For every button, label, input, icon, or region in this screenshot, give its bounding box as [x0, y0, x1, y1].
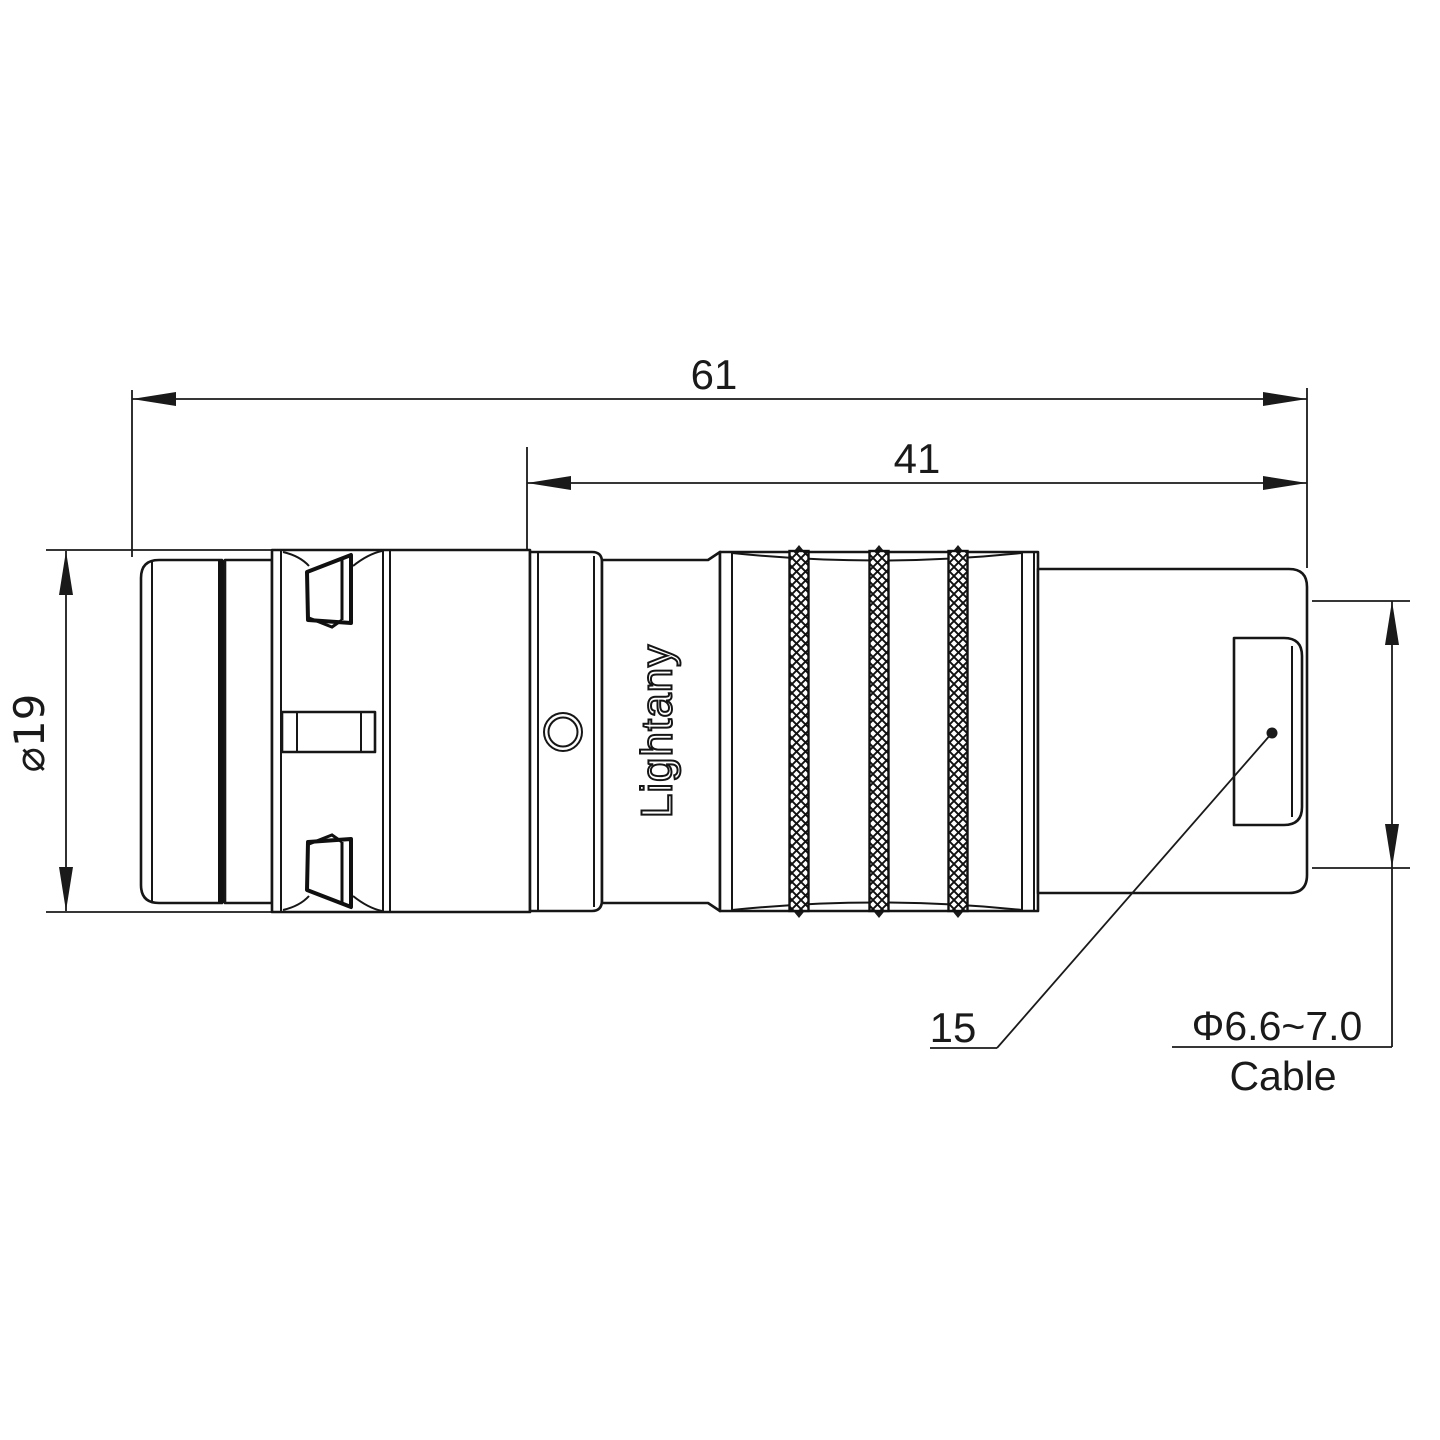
- connector-body: Lightany: [141, 545, 1307, 918]
- front-barrel: [225, 560, 272, 903]
- dim-61-label: 61: [691, 351, 738, 398]
- connector-drawing: Lightany 61 41 ⌀19: [0, 0, 1440, 1440]
- dim-cable-word-label: Cable: [1229, 1053, 1336, 1099]
- knurl-band-3-body: [949, 551, 968, 911]
- knurl-band-2-body: [870, 551, 889, 911]
- front-cap: [141, 560, 222, 903]
- dim-41-arrow-left: [527, 476, 571, 490]
- dim-cable-arrow-bottom: [1385, 824, 1399, 868]
- dim-41-arrow-right: [1263, 476, 1307, 490]
- dim-overall-length-61: 61: [132, 351, 1307, 568]
- dim-19-arrow-bottom: [59, 867, 73, 911]
- knurl-band-1: [790, 545, 809, 918]
- dim-61-arrow-right: [1263, 392, 1307, 406]
- dim-19-arrow-top: [59, 551, 73, 595]
- dim-cable-arrow-top: [1385, 601, 1399, 645]
- knurl-band-3: [949, 545, 968, 918]
- body-brand-text: Lightany: [633, 644, 682, 818]
- dim-41-label: 41: [894, 435, 941, 482]
- technical-drawing-page: Lightany 61 41 ⌀19: [0, 0, 1440, 1440]
- knurl-band-2: [870, 545, 889, 918]
- dim-19-label: ⌀19: [5, 694, 54, 773]
- dim-rear-length-41: 41: [527, 435, 1307, 556]
- leader-15-label: 15: [930, 1004, 977, 1051]
- knurl-band-1-body: [790, 551, 809, 911]
- dim-61-arrow-left: [132, 392, 176, 406]
- knurl-section: [720, 545, 1038, 918]
- coupling-collar: [530, 552, 602, 911]
- dim-cable-diameter-label: Φ6.6~7.0: [1192, 1003, 1363, 1049]
